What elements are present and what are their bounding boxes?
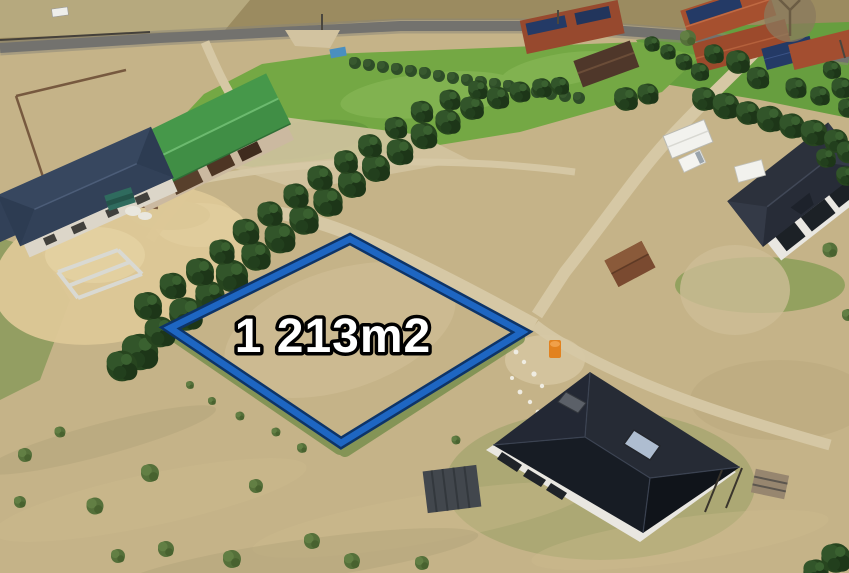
conifer-tree [387,139,414,166]
conifer-tree [713,93,740,120]
bush [415,556,429,570]
conifer-tree [289,205,318,234]
conifer-tree [411,123,438,150]
conifer-tree [265,223,296,254]
hedge-shrub [349,57,361,69]
conifer-tree [358,134,382,158]
conifer-tree [440,90,461,111]
conifer-tree [487,87,509,109]
conifer-tree [411,101,433,123]
conifer-tree [510,82,531,103]
bush [236,412,245,421]
conifer-tree [134,292,162,320]
bush [249,479,263,493]
conifer-tree [779,113,804,138]
bush [111,549,125,563]
conifer-tree [241,241,270,270]
bush [680,30,696,46]
conifer-tree [551,77,569,95]
conifer-tree [257,201,282,226]
conifer-tree [676,54,693,71]
bush [14,496,26,508]
conifer-tree [283,183,308,208]
conifer-tree [638,84,659,105]
conifer-tree [186,258,214,286]
bush [297,443,307,453]
conifer-tree [532,78,552,98]
conifer-tree [385,117,407,139]
hedge-shrub [391,63,403,75]
conifer-tree [334,150,358,174]
bush [344,553,360,569]
conifer-tree [786,78,807,99]
conifer-tree [338,170,366,198]
conifer-tree [362,154,390,182]
bush [823,243,838,258]
conifer-tree [460,96,484,120]
bush [272,428,281,437]
conifer-tree [660,44,675,59]
hedge-shrub [433,70,445,82]
bush [55,427,66,438]
bush [87,498,104,515]
conifer-tree [160,273,187,300]
dark-shed [423,465,482,513]
aerial-photo-stage: 1 213m2 [0,0,849,573]
bush [18,448,32,462]
hedge-shrub [573,92,585,104]
conifer-tree [704,44,724,64]
conifer-tree [747,67,769,89]
hedge-shrub [419,67,431,79]
bush [208,397,216,405]
hedge-shrub [405,65,417,77]
conifer-tree [810,86,830,106]
conifer-tree [107,351,138,382]
conifer-tree [307,165,332,190]
conifer-tree [736,101,760,125]
conifer-tree [313,187,342,216]
conifer-tree [757,106,784,133]
conifer-tree [816,148,836,168]
area-label: 1 213m2 [235,310,432,363]
conifer-tree [823,61,841,79]
bush [141,464,159,482]
conifer-tree [468,80,488,100]
conifer-tree [435,109,460,134]
hedge-shrub [377,61,389,73]
conifer-tree [614,87,638,111]
bush [158,541,174,557]
aerial-photo: 1 213m2 [0,0,849,573]
hedge-shrub [363,59,375,71]
hedge-shrub [447,72,459,84]
bush [223,550,241,568]
conifer-tree [692,87,716,111]
bush [452,436,461,445]
bush [304,533,320,549]
portable-toilet [549,340,561,358]
bush [186,381,194,389]
conifer-tree [691,63,709,81]
conifer-tree [801,120,828,147]
conifer-tree [209,239,234,264]
conifer-tree [233,219,260,246]
conifer-tree [644,36,659,51]
conifer-tree [726,50,750,74]
